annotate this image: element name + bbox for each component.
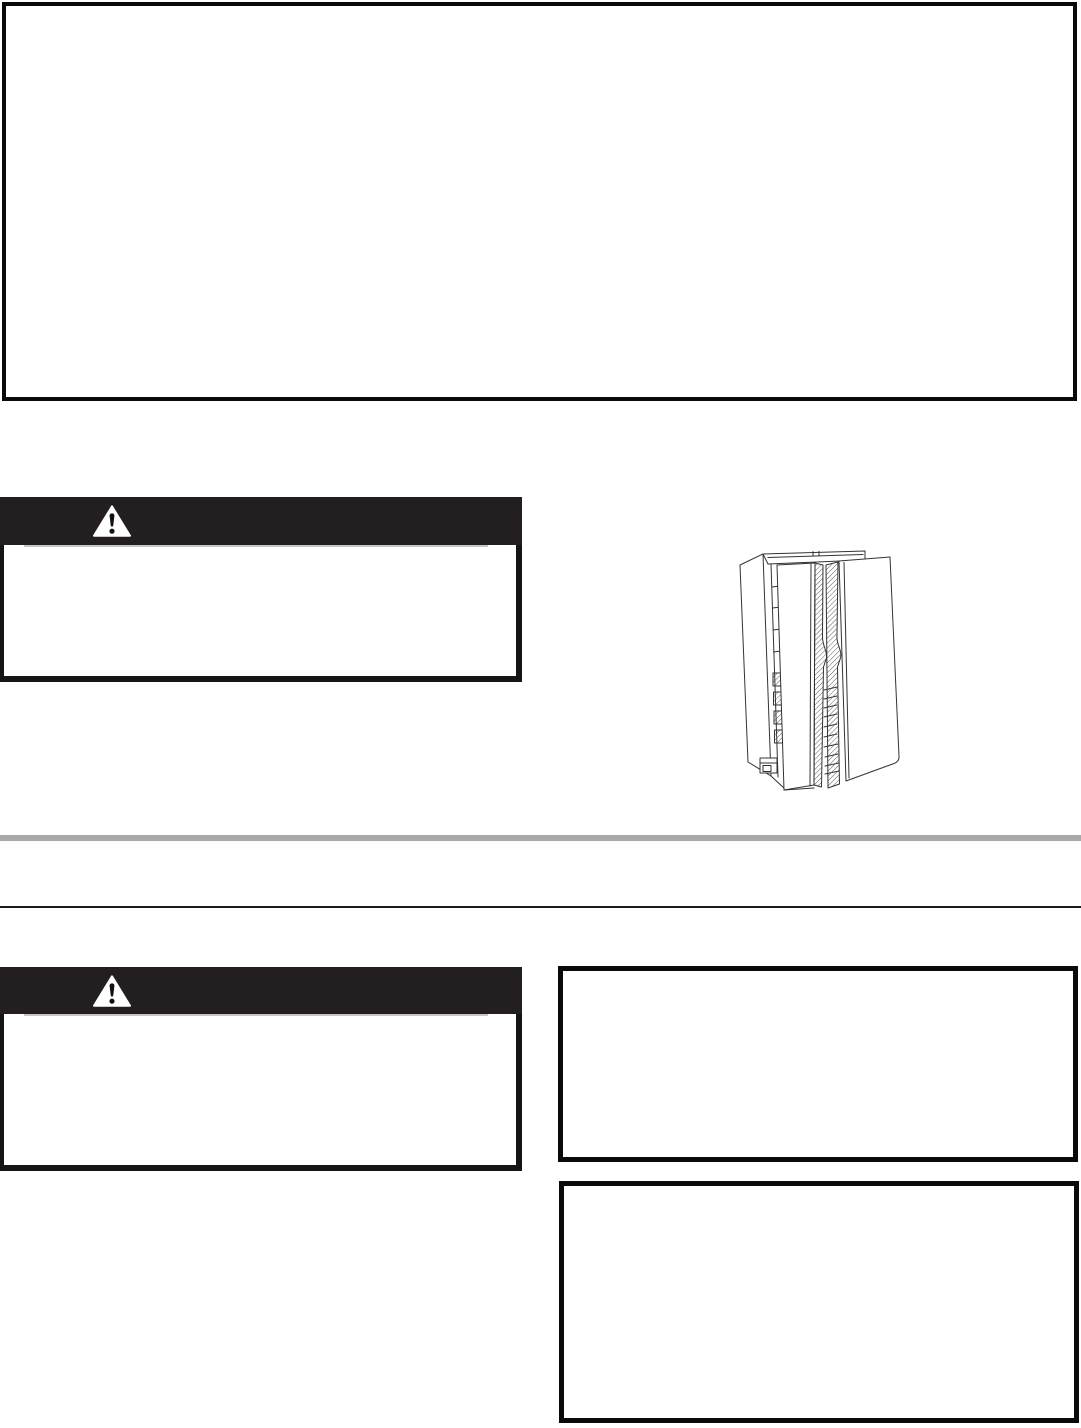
- warning-box-upper: [0, 497, 522, 682]
- refrigerator-open-doors-illustration: [727, 545, 907, 803]
- warning-banner: [0, 497, 522, 545]
- warning-body: [0, 545, 522, 682]
- right-content-box-upper: [558, 966, 1078, 1162]
- banner-underline: [24, 545, 488, 547]
- warning-triangle-icon: [93, 975, 131, 1008]
- warning-banner: [0, 967, 522, 1014]
- banner-underline: [24, 1014, 488, 1016]
- warning-body: [0, 1014, 522, 1171]
- right-content-box-lower: [559, 1181, 1079, 1423]
- top-content-box: [2, 2, 1077, 401]
- section-divider-black: [0, 906, 1081, 908]
- section-divider-gray: [0, 835, 1081, 841]
- manual-page: [0, 0, 1081, 1428]
- warning-box-lower: [0, 967, 522, 1171]
- warning-triangle-icon: [93, 505, 131, 538]
